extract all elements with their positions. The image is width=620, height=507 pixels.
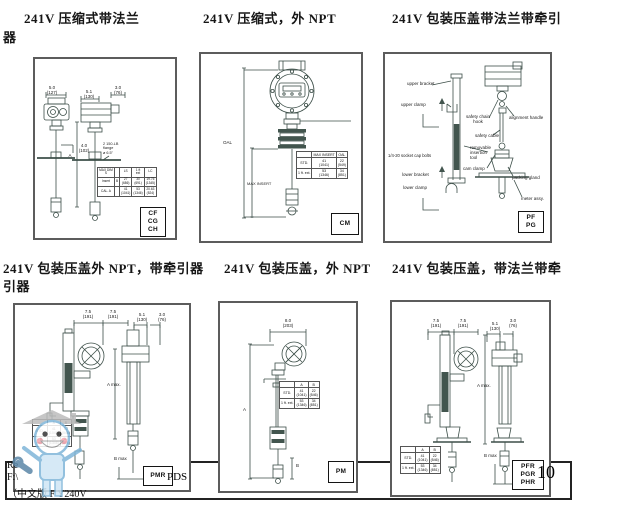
- b-max-dim-label: B max: [484, 453, 497, 458]
- flange-note: 2 150-LB flange ø 6.5": [103, 142, 129, 155]
- code-box-pf-pg: PF PG: [518, 211, 544, 233]
- title-pfr-wrap: 引器: [3, 276, 30, 295]
- dim-label: 5.1 (130): [485, 321, 505, 331]
- upper-bracket-label: upper bracket: [407, 81, 435, 86]
- alignment-handle-label: alignment handle: [509, 115, 543, 120]
- a-dim-label: A: [243, 407, 246, 412]
- diagram-pf-pg: upper bracket upper clamp 1/4-20 socket …: [383, 52, 552, 243]
- b-dim-label: B: [296, 463, 299, 468]
- dim-label: 7.5 (191): [102, 309, 124, 319]
- title-pfpg: 241V 包装压盖带法兰带牵引: [392, 8, 561, 27]
- b-max-dim-label: B max: [114, 456, 127, 461]
- dim-label: 4.0 (102): [73, 143, 95, 153]
- dim-label: 7.5 (191): [452, 318, 474, 328]
- pm-dimension-table: ABSTD.41 (1041)22 (546)1 ft. ext.53 (134…: [279, 381, 327, 409]
- meter-assy-label: meter assy.: [521, 196, 544, 201]
- max-insert-dim-label: MAX INSERT: [247, 182, 271, 187]
- dim-label: 5.1 (130): [78, 89, 100, 99]
- dim-label: 5.0 (127): [41, 85, 63, 95]
- dim-a-label: A: [65, 153, 75, 158]
- code-box-cm: CM: [331, 213, 359, 235]
- title-pm: 241V 包装压盖，外 NPT: [224, 258, 371, 277]
- socket-cap-bolts-label: 1/4-20 socket cap bolts: [388, 154, 431, 159]
- safety-chain-hook-label: safety chain hook: [465, 114, 491, 124]
- cf-dimension-table: MAX DIM SLS1 ft extLCInsertB27 (686)30 (…: [97, 167, 157, 197]
- diagram-cm: OAL MAX INSERT MAX INSERTOALSTD.41 (1041…: [199, 52, 363, 243]
- oal-dim-label: OAL: [223, 140, 232, 145]
- lower-bracket-label: lower bracket: [402, 172, 429, 177]
- dim-label: 8.0 (203): [277, 318, 299, 328]
- page-number: 10: [537, 462, 555, 483]
- pmr-dimension-table: ABSTD.41 (1041)22 (546)1 ft. ext.53 (134…: [32, 419, 72, 447]
- dim-label: 3.0 (76): [152, 312, 172, 322]
- packing-gland-label: packing gland: [512, 175, 540, 180]
- safety-cable-label: safety cable: [475, 133, 499, 138]
- footer-line-3: （中文版 F Y240V: [7, 485, 87, 500]
- dim-label: 3.0 (76): [107, 85, 129, 95]
- dim-label: 7.5 (191): [77, 309, 99, 319]
- title-pfr: 241V 包装压盖，带法兰带牵: [392, 258, 561, 277]
- catalog-page: 241V 压缩式带法兰 器 241V 压缩式，外 NPT 241V 包装压盖带法…: [0, 0, 620, 507]
- footer-line-2: F:\: [7, 472, 18, 483]
- dim-label: 7.5 (191): [425, 318, 447, 328]
- title-cf: 241V 压缩式带法兰: [24, 8, 139, 27]
- diagram-pm: 8.0 (203) A B ABSTD.41 (1041)22 (546)1 f…: [218, 301, 358, 493]
- pmr-drawing: [15, 305, 189, 490]
- dim-label: 5.1 (130): [132, 312, 152, 322]
- a-max-dim-label: A max.: [477, 383, 491, 388]
- diagram-pfr-pgr-phr: 7.5 (191) 7.5 (191) 5.1 (130) 3.0 (76) A…: [390, 300, 551, 497]
- title-cm: 241V 压缩式，外 NPT: [203, 8, 336, 27]
- code-box-pm: PM: [328, 461, 354, 483]
- title-pmr: 241V 包装压盖外 NPT，带牵引器: [3, 258, 204, 277]
- diagram-cf-cg-ch: 5.0 (127) 5.1 (130) 3.0 (76) 4.0 (102) A…: [33, 57, 177, 240]
- lower-clamp-label: lower clamp: [403, 185, 427, 190]
- pfr-dimension-table: ABSTD.41 (1041)22 (546)1 ft. ext.53 (134…: [400, 446, 448, 474]
- title-cf-wrap: 器: [3, 27, 17, 46]
- pds-label: PDS: [167, 471, 187, 483]
- insertion-tool-label: removable insertion tool: [470, 145, 491, 161]
- diagram-pmr: 7.5 (191) 7.5 (191) 5.1 (130) 3.0 (76) A…: [13, 303, 191, 492]
- a-max-dim-label: A max.: [107, 382, 121, 387]
- code-box-cf-cg-ch: CF CG CH: [140, 207, 166, 237]
- cam-clamp-label: cam clamp: [463, 166, 485, 171]
- footer-line-1: Re: [7, 460, 18, 471]
- cm-dimension-table: MAX INSERTOALSTD.41 (1041)22 (549)1 ft. …: [296, 151, 354, 179]
- upper-clamp-label: upper clamp: [401, 102, 426, 107]
- dim-label: 3.0 (76): [503, 318, 523, 328]
